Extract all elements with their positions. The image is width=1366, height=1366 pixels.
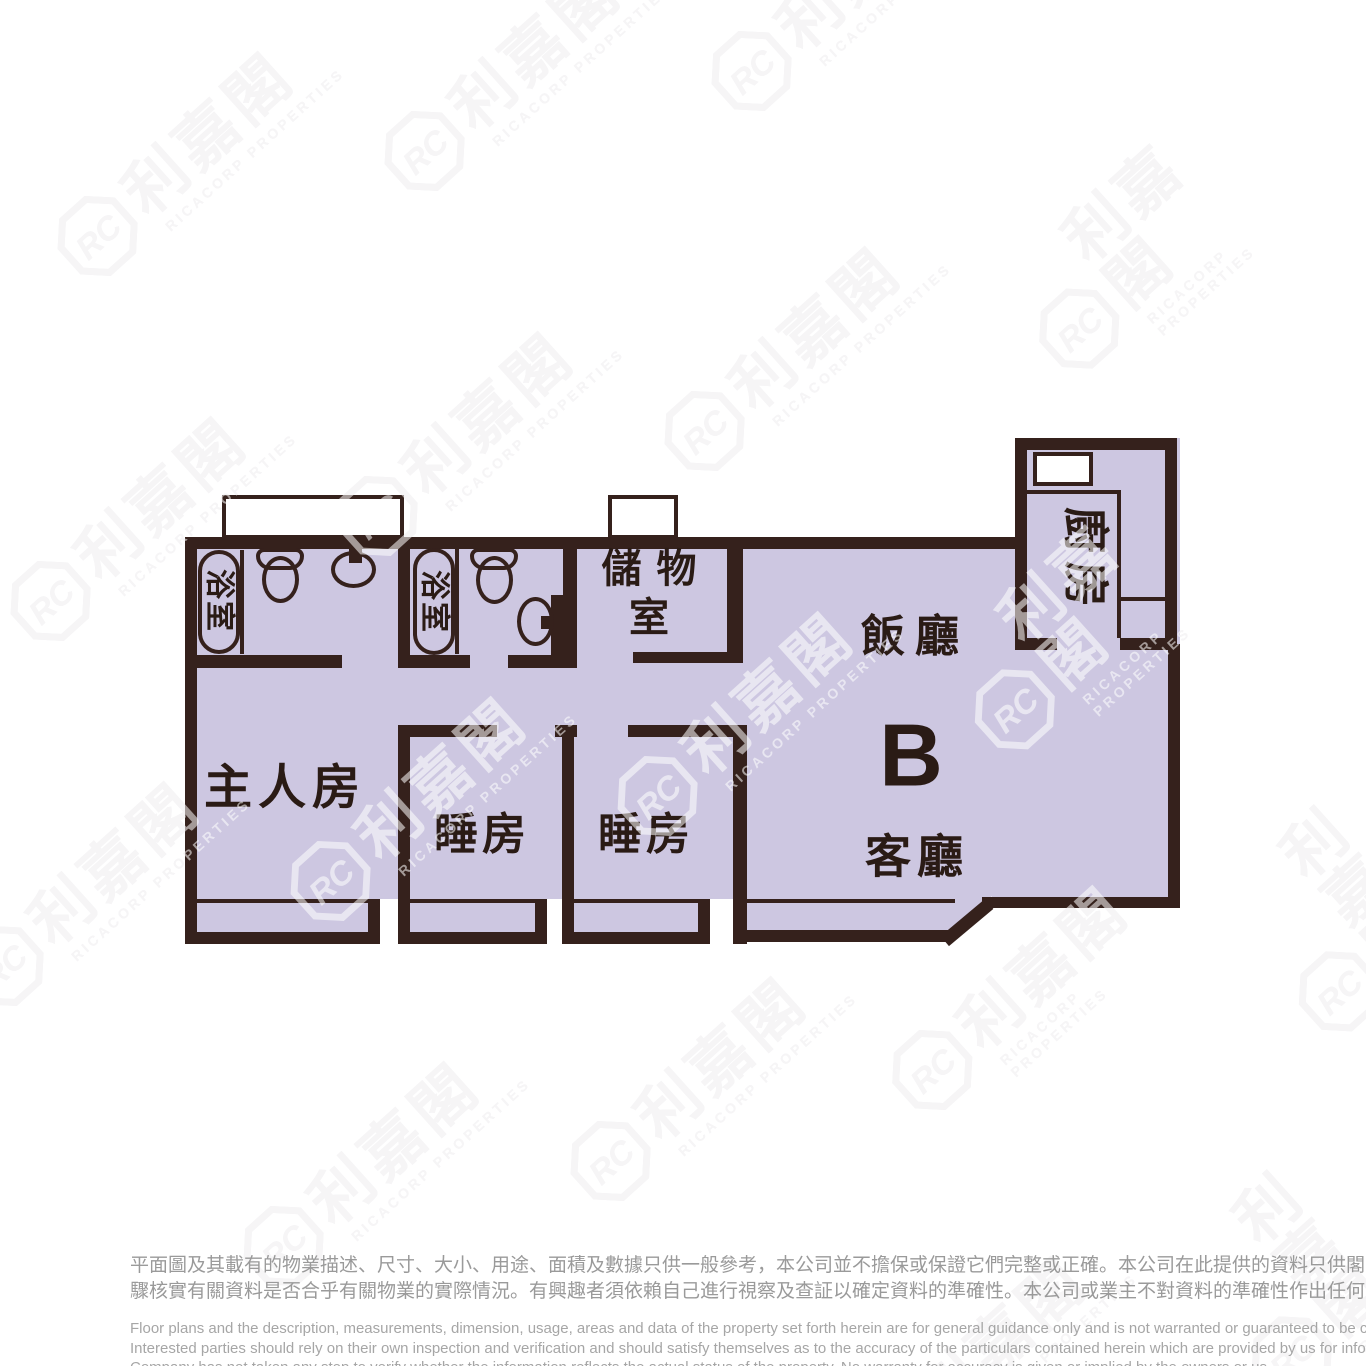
floorplan-canvas: RC 利嘉閣 RICACORP PROPERTIES RC 利嘉閣 RICACO… <box>0 0 1366 1366</box>
watermark-chars: 利嘉閣 <box>113 44 306 227</box>
ricacorp-watermark-logo: RC 利嘉閣 RICACORP PROPERTIES <box>0 742 253 1029</box>
watermark-subtitle: RICACORP PROPERTIES <box>1144 221 1270 339</box>
svg-text:RC: RC <box>302 852 363 912</box>
svg-text:RC: RC <box>1051 300 1112 360</box>
watermark-subtitle: RICACORP PROPERTIES <box>816 0 1001 69</box>
rc-octagon-icon: RC <box>276 826 386 936</box>
ricacorp-watermark-logo: RC 利嘉閣 RICACORP PROPERTIES <box>1206 754 1366 1066</box>
svg-text:RC: RC <box>986 680 1047 740</box>
svg-text:RC: RC <box>676 402 737 462</box>
ricacorp-watermark-logo: RC 利嘉閣 RICACORP PROPERTIES <box>323 292 628 579</box>
watermark-chars: 利嘉閣 <box>989 476 1218 699</box>
svg-text:RC: RC <box>0 937 36 997</box>
rc-octagon-icon: RC <box>650 376 760 486</box>
rc-octagon-icon: RC <box>1284 936 1366 1046</box>
rc-octagon-icon: RC <box>877 1015 987 1125</box>
watermark-subtitle: RICACORP PROPERTIES <box>348 1075 533 1244</box>
ricacorp-watermark-logo: RC 利嘉閣 RICACORP PROPERTIES <box>697 0 1002 133</box>
watermark-chars: 利嘉閣 <box>19 774 212 957</box>
disclaimer-zh-line2: 驟核實有關資料是否合乎有關物業的實際情況。有興趣者須依賴自己進行視察及查証以確定… <box>130 1279 1246 1305</box>
watermark-chars: 利嘉閣 <box>440 0 633 141</box>
rc-octagon-icon: RC <box>43 181 153 291</box>
rc-octagon-icon: RC <box>697 16 807 126</box>
svg-text:RC: RC <box>582 1132 643 1192</box>
watermark-subtitle: RICACORP PROPERTIES <box>68 795 253 964</box>
disclaimer-en-line1: Floor plans and the description, measure… <box>130 1319 1246 1339</box>
watermark-subtitle: RICACORP PROPERTIES <box>722 625 907 794</box>
watermark-chars: 利嘉閣 <box>673 604 866 787</box>
watermark-subtitle: RICACORP PROPERTIES <box>162 65 347 234</box>
svg-text:RC: RC <box>349 487 410 547</box>
svg-text:RC: RC <box>629 767 690 827</box>
ricacorp-watermark-logo: RC 利嘉閣 RICACORP PROPERTIES <box>650 207 955 494</box>
rc-octagon-icon: RC <box>323 461 433 571</box>
watermark-chars: 利嘉閣 <box>1053 127 1247 319</box>
svg-text:RC: RC <box>904 1041 965 1101</box>
ricacorp-watermark-logo: RC 利嘉閣 RICACORP PROPERTIES <box>0 377 300 664</box>
rc-octagon-icon: RC <box>1024 274 1134 384</box>
watermark-chars: 利嘉閣 <box>393 324 586 507</box>
disclaimer-en-line3: Company has not taken any step to verify… <box>130 1358 1246 1366</box>
svg-text:RC: RC <box>1310 963 1366 1023</box>
ricacorp-watermark-logo: RC 利嘉閣 RICACORP PROPERTIES <box>988 127 1270 403</box>
svg-text:RC: RC <box>69 207 130 267</box>
rc-octagon-icon: RC <box>0 911 59 1021</box>
watermark-chars: 利嘉閣 <box>346 689 539 872</box>
watermark-subtitle: RICACORP PROPERTIES <box>395 710 580 879</box>
watermark-subtitle: RICACORP PROPERTIES <box>442 345 627 514</box>
watermark-subtitle: RICACORP PROPERTIES <box>115 430 300 599</box>
ricacorp-watermark-logo: RC 利嘉閣 RICACORP PROPERTIES <box>924 476 1241 783</box>
rc-octagon-icon: RC <box>556 1106 666 1216</box>
rc-octagon-icon: RC <box>603 741 713 851</box>
watermark-chars: 利嘉閣 <box>66 409 259 592</box>
watermark-chars: 利嘉閣 <box>948 878 1141 1061</box>
watermark-subtitle: RICACORP PROPERTIES <box>675 990 860 1159</box>
svg-text:RC: RC <box>396 122 457 182</box>
rc-octagon-icon: RC <box>0 546 106 656</box>
watermark-chars: 利嘉閣 <box>299 1054 492 1237</box>
ricacorp-watermark-logo: RC 利嘉閣 RICACORP PROPERTIES <box>276 657 581 944</box>
watermark-subtitle: RICACORP PROPERTIES <box>769 260 954 429</box>
watermark-subtitle: RICACORP PROPERTIES <box>489 0 674 149</box>
ricacorp-watermark-logo: RC 利嘉閣 RICACORP PROPERTIES <box>43 12 348 299</box>
svg-text:RC: RC <box>723 42 784 102</box>
watermark-subtitle: RICACORP PROPERTIES <box>1079 570 1240 720</box>
disclaimer-en-line2: Interested parties should rely on their … <box>130 1339 1246 1359</box>
watermark-chars: 利嘉閣 <box>626 969 819 1152</box>
watermark-subtitle: RICACORP PROPERTIES <box>997 899 1193 1080</box>
ricacorp-watermark-logo: RC 利嘉閣 RICACORP PROPERTIES <box>877 846 1193 1145</box>
watermark-layer-overlay: RC 利嘉閣 RICACORP PROPERTIES RC 利嘉閣 RICACO… <box>0 0 1366 1366</box>
watermark-chars: 利嘉閣 <box>720 239 913 422</box>
rc-octagon-icon: RC <box>370 96 480 206</box>
watermark-chars: 利嘉閣 <box>1272 754 1366 981</box>
rc-octagon-icon: RC <box>960 654 1070 764</box>
ricacorp-watermark-logo: RC 利嘉閣 RICACORP PROPERTIES <box>556 937 861 1224</box>
ricacorp-watermark-logo: RC 利嘉閣 RICACORP PROPERTIES <box>370 0 675 213</box>
ricacorp-watermark-logo: RC 利嘉閣 RICACORP PROPERTIES <box>603 572 908 859</box>
disclaimer: 平面圖及其載有的物業描述、尺寸、大小、用途、面積及數據只供一般參考，本公司並不擔… <box>130 1253 1246 1366</box>
disclaimer-zh-line1: 平面圖及其載有的物業描述、尺寸、大小、用途、面積及數據只供一般參考，本公司並不擔… <box>130 1253 1246 1279</box>
watermark-chars: 利嘉閣 <box>767 0 960 61</box>
svg-text:RC: RC <box>22 572 83 632</box>
